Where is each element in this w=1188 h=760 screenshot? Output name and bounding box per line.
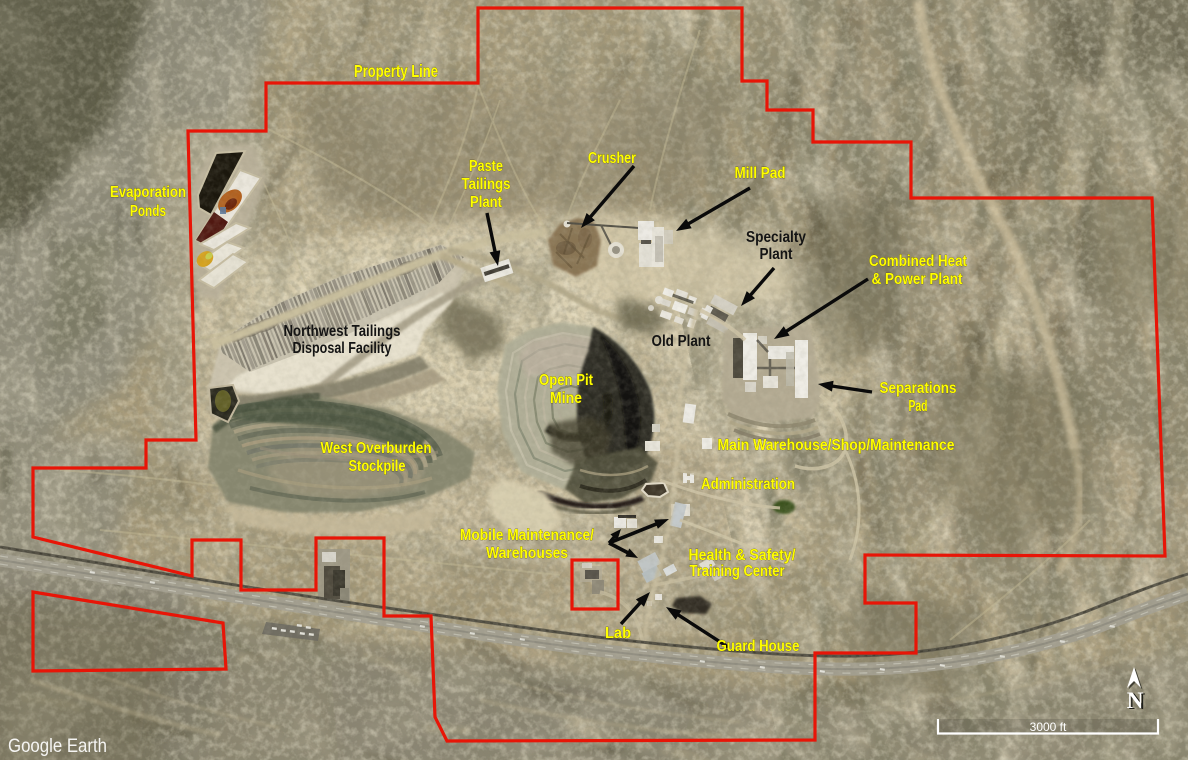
svg-text:Health & Safety/: Health & Safety/ (689, 547, 797, 564)
svg-text:Tailings: Tailings (462, 176, 511, 193)
svg-text:Mobile Maintenance/: Mobile Maintenance/ (460, 527, 595, 544)
svg-text:Specialty: Specialty (746, 229, 806, 246)
svg-text:Paste: Paste (469, 158, 503, 175)
svg-text:Administration: Administration (701, 476, 795, 493)
svg-text:Mill Pad: Mill Pad (735, 165, 786, 182)
svg-text:Plant: Plant (470, 194, 502, 211)
svg-text:Separations: Separations (880, 380, 957, 397)
svg-text:Stockpile: Stockpile (349, 458, 406, 475)
svg-text:Old Plant: Old Plant (652, 333, 711, 350)
svg-text:N: N (1127, 688, 1144, 713)
svg-text:Pad: Pad (909, 398, 928, 415)
svg-text:Plant: Plant (760, 246, 793, 263)
svg-text:& Power Plant: & Power Plant (872, 271, 963, 288)
svg-text:Guard House: Guard House (717, 638, 800, 655)
svg-text:Northwest Tailings: Northwest Tailings (284, 323, 401, 340)
svg-text:Training Center: Training Center (690, 563, 785, 580)
svg-text:Warehouses: Warehouses (486, 545, 568, 562)
svg-text:Evaporation: Evaporation (110, 184, 186, 201)
svg-text:Mine: Mine (550, 390, 582, 407)
svg-text:Combined Heat: Combined Heat (869, 253, 967, 270)
svg-text:Lab: Lab (605, 625, 631, 642)
svg-text:Disposal Facility: Disposal Facility (293, 340, 392, 357)
svg-text:3000 ft: 3000 ft (1030, 720, 1067, 734)
svg-text:Google Earth: Google Earth (8, 735, 107, 757)
svg-text:West Overburden: West Overburden (321, 440, 432, 457)
svg-text:Crusher: Crusher (588, 150, 636, 167)
svg-text:Property Line: Property Line (354, 61, 438, 81)
svg-text:Ponds: Ponds (130, 203, 166, 220)
svg-text:Main Warehouse/Shop/Maintenanc: Main Warehouse/Shop/Maintenance (718, 437, 955, 454)
svg-text:Open Pit: Open Pit (539, 372, 593, 389)
